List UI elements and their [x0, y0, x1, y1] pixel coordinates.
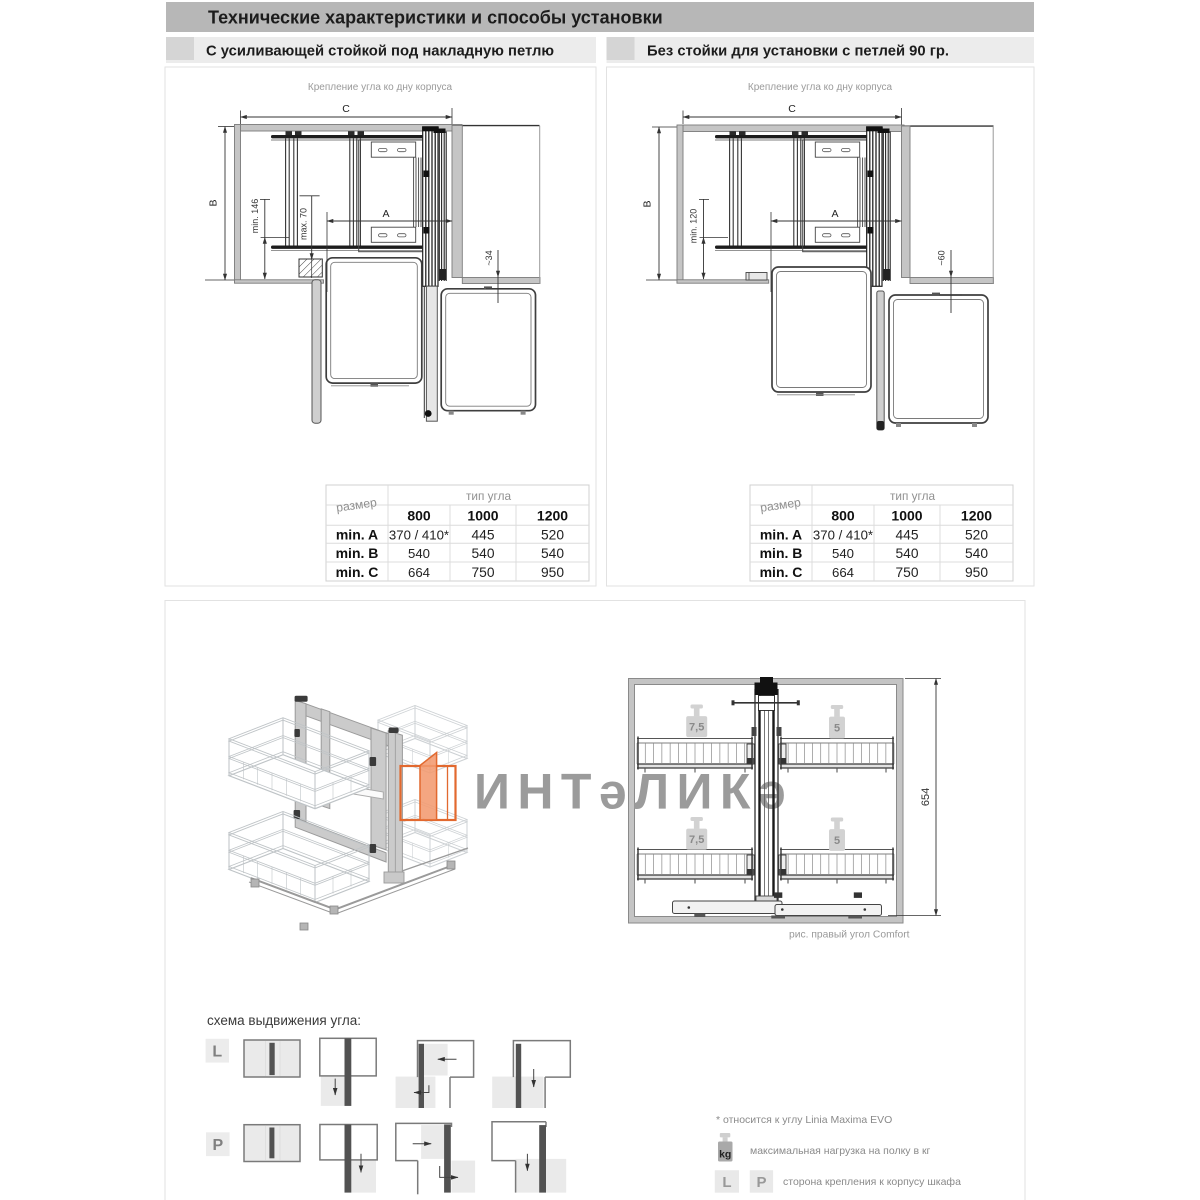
svg-text:A: A: [382, 208, 389, 220]
svg-text:B: B: [642, 200, 654, 207]
svg-text:654: 654: [920, 788, 932, 806]
svg-text:7,5: 7,5: [689, 834, 704, 846]
svg-text:сторона крепления к корпусу шк: сторона крепления к корпусу шкафа: [783, 1176, 961, 1188]
svg-text:L: L: [212, 1044, 222, 1061]
svg-text:тип угла: тип угла: [890, 489, 935, 503]
svg-text:800: 800: [831, 508, 855, 524]
svg-text:~60: ~60: [937, 250, 947, 265]
svg-text:L: L: [722, 1174, 731, 1191]
svg-text:540: 540: [832, 546, 854, 561]
svg-text:С усиливающей стойкой под накл: С усиливающей стойкой под накладную петл…: [206, 44, 554, 60]
svg-text:тип угла: тип угла: [466, 489, 511, 503]
svg-text:kg: kg: [719, 1149, 731, 1161]
svg-text:Крепление угла ко дну корпуса: Крепление угла ко дну корпуса: [308, 82, 453, 93]
svg-text:540: 540: [895, 546, 918, 561]
svg-text:1000: 1000: [467, 508, 498, 524]
svg-text:540: 540: [408, 546, 430, 561]
svg-text:664: 664: [408, 565, 430, 580]
svg-text:370 / 410*: 370 / 410*: [813, 527, 873, 542]
svg-text:800: 800: [407, 508, 431, 524]
svg-text:min. 120: min. 120: [689, 209, 699, 244]
svg-text:370 / 410*: 370 / 410*: [389, 527, 449, 542]
svg-text:* относится к углу Linia Maxim: * относится к углу Linia Maxima EVO: [716, 1114, 892, 1126]
svg-text:445: 445: [895, 527, 918, 542]
svg-text:max. 70: max. 70: [299, 208, 309, 240]
svg-text:min. A: min. A: [336, 526, 378, 542]
svg-text:C: C: [788, 103, 796, 115]
svg-text:Крепление угла ко дну корпуса: Крепление угла ко дну корпуса: [748, 82, 893, 93]
svg-text:P: P: [756, 1174, 766, 1191]
svg-text:1200: 1200: [537, 508, 568, 524]
svg-text:~34: ~34: [484, 250, 494, 265]
svg-text:1200: 1200: [961, 508, 992, 524]
svg-text:950: 950: [541, 565, 564, 580]
svg-text:445: 445: [471, 527, 494, 542]
svg-text:максимальная нагрузка на полку: максимальная нагрузка на полку в кг: [750, 1145, 931, 1157]
svg-text:520: 520: [541, 527, 564, 542]
svg-text:540: 540: [965, 546, 988, 561]
svg-text:540: 540: [471, 546, 494, 561]
svg-text:P: P: [212, 1137, 223, 1154]
svg-text:750: 750: [895, 565, 918, 580]
svg-text:рис. правый угол Comfort: рис. правый угол Comfort: [789, 930, 910, 941]
svg-text:7,5: 7,5: [689, 722, 704, 734]
svg-text:540: 540: [541, 546, 564, 561]
svg-text:1000: 1000: [891, 508, 922, 524]
svg-text:min. B: min. B: [760, 545, 803, 561]
svg-text:C: C: [342, 103, 350, 115]
svg-text:Без стойки для установки с пет: Без стойки для установки с петлей 90 гр.: [647, 44, 949, 60]
svg-text:5: 5: [834, 723, 840, 735]
svg-text:размер: размер: [759, 495, 802, 515]
svg-text:min. A: min. A: [760, 526, 802, 542]
svg-text:5: 5: [834, 835, 840, 847]
svg-text:min. 146: min. 146: [250, 199, 260, 234]
svg-text:min. C: min. C: [760, 564, 803, 580]
svg-text:520: 520: [965, 527, 988, 542]
svg-text:min. C: min. C: [336, 564, 379, 580]
svg-text:min. B: min. B: [336, 545, 379, 561]
svg-text:664: 664: [832, 565, 854, 580]
svg-text:Технические характеристики и с: Технические характеристики и способы уст…: [208, 8, 663, 28]
svg-text:A: A: [831, 208, 838, 220]
svg-text:B: B: [208, 199, 220, 206]
svg-text:размер: размер: [335, 495, 378, 515]
svg-text:схема выдвижения угла:: схема выдвижения угла:: [207, 1013, 361, 1028]
svg-text:750: 750: [471, 565, 494, 580]
svg-text:950: 950: [965, 565, 988, 580]
